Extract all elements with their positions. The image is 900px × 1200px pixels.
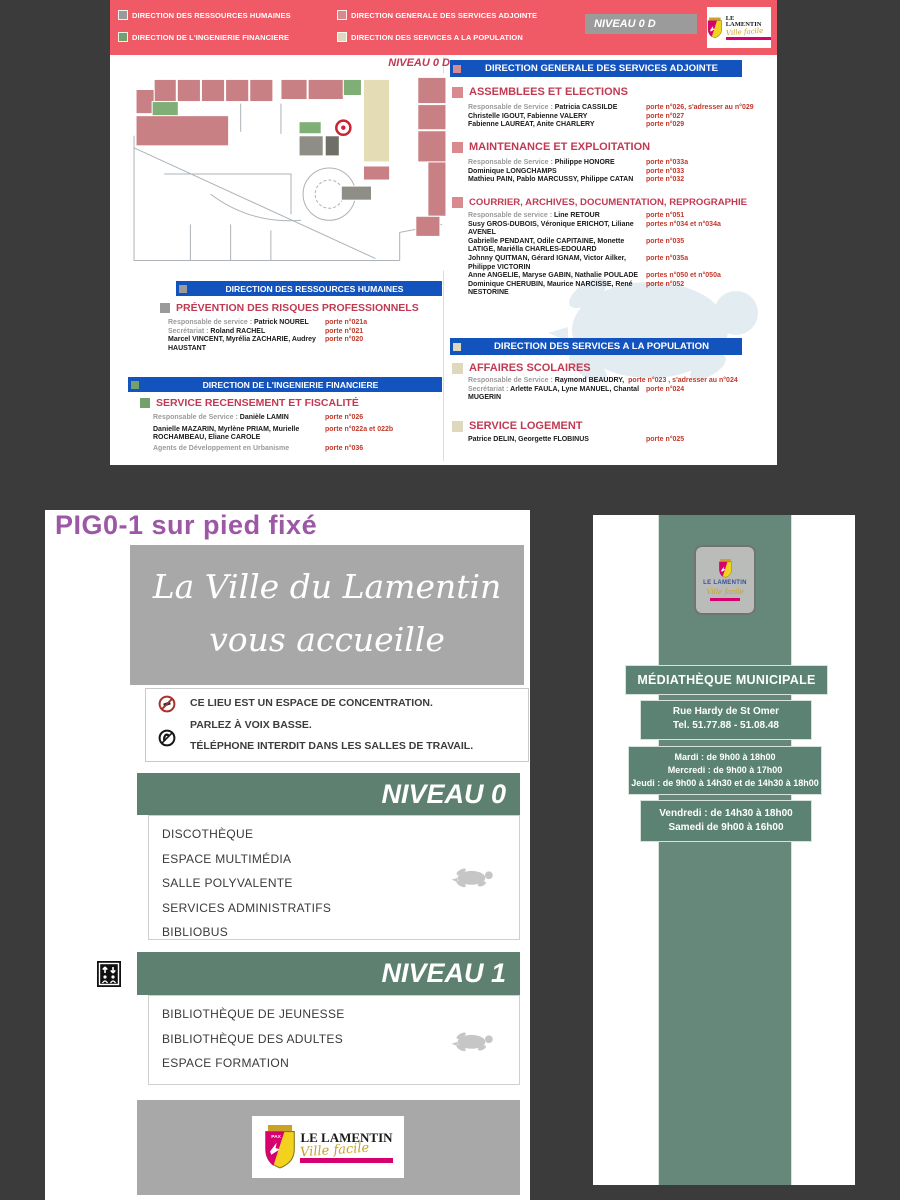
logo-text: LE LAMENTIN Ville facile xyxy=(726,16,771,40)
legend-item-dif: DIRECTION DE L'INGENIERIE FINANCIERE xyxy=(118,32,289,42)
list-item: SERVICES ADMINISTRATIFS xyxy=(162,896,519,921)
staff-row: Dominique CHERUBIN, Maurice NARCISSE, Re… xyxy=(468,281,764,298)
dsp-square xyxy=(453,343,461,351)
legend-square-gray xyxy=(118,10,128,20)
service-title-label: SERVICE RECENSEMENT ET FISCALITÉ xyxy=(156,397,359,409)
staff-row: Danielle MAZARIN, Myrlène PRIAM, Muriell… xyxy=(153,426,443,443)
legend-item-drh: DIRECTION DES RESSOURCES HUMAINES xyxy=(118,10,291,20)
logo-text: LE LAMENTIN Ville facile xyxy=(300,1131,392,1163)
dif-service-title: SERVICE RECENSEMENT ET FISCALITÉ xyxy=(140,397,359,409)
left-column: NIVEAU 0 D xyxy=(120,55,443,465)
rules-box: CE LIEU EST UN ESPACE DE CONCENTRATION. … xyxy=(145,688,529,762)
staff-row: Anne ANGELIE, Maryse GABIN, Nathalie POU… xyxy=(468,272,764,281)
dgsa-service-title-0: ASSEMBLEES ET ELECTIONS xyxy=(452,86,628,98)
elevator-icon xyxy=(97,961,121,987)
dgsa-service-title-2: COURRIER, ARCHIVES, DOCUMENTATION, REPRO… xyxy=(452,197,747,208)
welcome-line-1: La Ville du Lamentin xyxy=(130,567,524,606)
legend-label: DIRECTION DES RESSOURCES HUMAINES xyxy=(132,11,291,20)
legend-label: DIRECTION GENERALE DES SERVICES ADJOINTE xyxy=(351,11,537,20)
totem-hours-band-1: Mardi : de 9h00 à 18h00 Mercredi : de 9h… xyxy=(628,746,822,795)
totem-logo-plaque: LE LAMENTIN Ville facile xyxy=(694,545,756,615)
directory-header: DIRECTION DES RESSOURCES HUMAINES DIRECT… xyxy=(110,0,777,55)
staff-row: Responsable de Service : Danièle LAMIN p… xyxy=(153,414,443,423)
logo-tagline: Ville facile xyxy=(726,27,764,37)
niveau1-bar: NIVEAU 1 xyxy=(137,952,520,995)
dgsa-header-label: DIRECTION GENERALE DES SERVICES ADJOINTE xyxy=(461,63,742,74)
list-item: ESPACE FORMATION xyxy=(162,1051,519,1076)
poster-footer: PAX LE LAMENTIN Ville facile xyxy=(137,1100,520,1195)
staff-row: Responsable de service : Patrick NOUREL … xyxy=(168,319,443,328)
staff-row: Fabienne LAUREAT, Anite CHARLERY porte n… xyxy=(468,121,764,130)
dgsa-rows-0: Responsable de Service : Patricia CASSIL… xyxy=(468,104,764,130)
dsp-service-title-1: SERVICE LOGEMENT xyxy=(452,420,582,432)
niveau0-list: DISCOTHÈQUE ESPACE MULTIMÉDIA SALLE POLY… xyxy=(148,815,520,940)
legend-square-green xyxy=(118,32,128,42)
service-square xyxy=(452,363,463,374)
logo-name: LE LAMENTIN xyxy=(726,16,771,29)
service-square xyxy=(140,398,150,408)
dgsa-rows-2: Responsable de service : Line RETOUR por… xyxy=(468,212,764,298)
plan-title: NIVEAU 0 D xyxy=(130,57,450,69)
list-item: BIBLIOBUS xyxy=(162,920,519,945)
staff-row: Susy GROS-DUBOIS, Véronique ERICHOT, Lil… xyxy=(468,221,764,238)
logo-tagline: Ville facile xyxy=(706,588,743,596)
dsp-rows-1: Patrice DELIN, Georgette FLOBINUS porte … xyxy=(468,436,764,445)
list-item: DISCOTHÈQUE xyxy=(162,822,519,847)
list-item: SALLE POLYVALENTE xyxy=(162,871,519,896)
hours-line: Mercredi : de 9h00 à 17h00 xyxy=(629,764,821,777)
svg-text:PAX: PAX xyxy=(272,1134,282,1140)
service-title-label: MAINTENANCE ET EXPLOITATION xyxy=(469,141,650,153)
address-line: Rue Hardy de St Omer xyxy=(641,705,811,719)
dgsa-square xyxy=(453,65,461,73)
no-phone-icon xyxy=(158,729,176,747)
staff-row: Gabrielle PENDANT, Odile CAPITAINE, Mone… xyxy=(468,238,764,255)
totem-hours-band-2: Vendredi : de 14h30 à 18h00 Samedi de 9h… xyxy=(640,800,812,842)
no-noise-icon xyxy=(158,695,176,713)
crest-icon xyxy=(718,559,733,578)
crest-icon: PAX xyxy=(263,1125,297,1169)
service-title-label: COURRIER, ARCHIVES, DOCUMENTATION, REPRO… xyxy=(469,197,747,208)
list-item: BIBLIOTHÈQUE DE JEUNESSE xyxy=(162,1002,519,1027)
service-square xyxy=(160,303,170,313)
staff-row: Marcel VINCENT, Myrélia ZACHARIE, Audrey… xyxy=(168,336,443,353)
service-title-label: SERVICE LOGEMENT xyxy=(469,420,582,432)
niveau1-bar-icons xyxy=(55,961,121,987)
phone-line: Tel. 51.77.88 - 51.08.48 xyxy=(641,719,811,733)
staff-row: Responsable de Service : Patricia CASSIL… xyxy=(468,104,764,113)
logo-bar xyxy=(726,37,771,40)
niveau0-bar: NIVEAU 0 xyxy=(137,773,520,815)
dif-header-bar: DIRECTION DE L'INGENIERIE FINANCIERE xyxy=(128,377,442,392)
staff-row: Secrétariat : Arlette FAULA, Lyne MANUEL… xyxy=(468,386,764,403)
legend-square-beige xyxy=(337,32,347,42)
service-square xyxy=(452,197,463,208)
staff-row: Patrice DELIN, Georgette FLOBINUS porte … xyxy=(468,436,764,445)
list-item: BIBLIOTHÈQUE DES ADULTES xyxy=(162,1027,519,1052)
level-badge: NIVEAU 0 D xyxy=(585,14,697,34)
dsp-service-title-0: AFFAIRES SCOLAIRES xyxy=(452,362,591,374)
hours-line: Vendredi : de 14h30 à 18h00 xyxy=(641,807,811,821)
rule-text: PARLEZ À VOIX BASSE. xyxy=(190,719,312,731)
service-square xyxy=(452,142,463,153)
drh-square xyxy=(179,285,187,293)
service-square xyxy=(452,87,463,98)
staff-row: Responsable de Service : Philippe HONORE… xyxy=(468,159,764,168)
service-title-label: ASSEMBLEES ET ELECTIONS xyxy=(469,86,628,98)
rule-text: CE LIEU EST UN ESPACE DE CONCENTRATION. xyxy=(190,697,433,709)
poster-title: PIG0-1 sur pied fixé xyxy=(55,510,317,541)
staff-row: Johnny QUITMAN, Gérard IGNAM, Victor Ail… xyxy=(468,255,764,272)
logo-bar xyxy=(710,598,740,601)
hours-line: Samedi de 9h00 à 16h00 xyxy=(641,821,811,835)
page: DIRECTION DES RESSOURCES HUMAINES DIRECT… xyxy=(0,0,900,1200)
legend-square-rose xyxy=(337,10,347,20)
logo-name: LE LAMENTIN xyxy=(703,580,747,586)
rule-text: TÉLÉPHONE INTERDIT DANS LES SALLES DE TR… xyxy=(190,740,473,752)
welcome-poster: PIG0-1 sur pied fixé La Ville du Lamenti… xyxy=(45,510,530,1200)
crest-icon xyxy=(707,17,723,39)
drh-service-title: PRÉVENTION DES RISQUES PROFESSIONNELS xyxy=(160,302,419,314)
directory-panel: DIRECTION DES RESSOURCES HUMAINES DIRECT… xyxy=(110,0,777,465)
niveau1-list: BIBLIOTHÈQUE DE JEUNESSE BIBLIOTHÈQUE DE… xyxy=(148,995,520,1085)
list-item: ESPACE MULTIMÉDIA xyxy=(162,847,519,872)
lamentin-logo: PAX LE LAMENTIN Ville facile xyxy=(252,1116,404,1178)
right-column: DIRECTION GENERALE DES SERVICES ADJOINTE… xyxy=(450,58,767,462)
dif-square xyxy=(131,381,139,389)
dsp-rows-0: Responsable de Service : Raymond BEAUDRY… xyxy=(468,377,764,403)
legend-item-dgsa: DIRECTION GENERALE DES SERVICES ADJOINTE xyxy=(337,10,537,20)
drh-header-label: DIRECTION DES RESSOURCES HUMAINES xyxy=(187,284,442,294)
welcome-line-2: vous accueille xyxy=(130,620,524,659)
service-square xyxy=(452,421,463,432)
dgsa-service-title-1: MAINTENANCE ET EXPLOITATION xyxy=(452,141,650,153)
service-title-label: PRÉVENTION DES RISQUES PROFESSIONNELS xyxy=(176,302,419,314)
staff-row: Mathieu PAIN, Pablo MARCUSSY, Philippe C… xyxy=(468,176,764,185)
dif-rows: Responsable de Service : Danièle LAMIN p… xyxy=(153,414,443,453)
staff-row: Responsable de Service : Raymond BEAUDRY… xyxy=(468,377,764,386)
drh-header-bar: DIRECTION DES RESSOURCES HUMAINES xyxy=(176,281,442,296)
welcome-box: La Ville du Lamentin vous accueille xyxy=(130,545,524,685)
dgsa-header-bar: DIRECTION GENERALE DES SERVICES ADJOINTE xyxy=(450,60,742,77)
totem-column xyxy=(658,515,792,1185)
logo-tagline: Ville facile xyxy=(300,1142,370,1160)
legend-label: DIRECTION DE L'INGENIERIE FINANCIERE xyxy=(132,33,289,42)
hours-line: Mardi : de 9h00 à 18h00 xyxy=(629,751,821,764)
you-are-here-marker xyxy=(336,121,350,135)
dsp-header-label: DIRECTION DES SERVICES A LA POPULATION xyxy=(461,341,742,352)
staff-row: Dominique LONGCHAMPS porte n°033 xyxy=(468,168,764,177)
service-title-label: AFFAIRES SCOLAIRES xyxy=(469,362,591,374)
directory-body: NIVEAU 0 D xyxy=(110,55,777,465)
dsp-header-bar: DIRECTION DES SERVICES A LA POPULATION xyxy=(450,338,742,355)
hours-line: Jeudi : de 9h00 à 14h30 et de 14h30 à 18… xyxy=(629,777,821,790)
lamentin-logo: LE LAMENTIN Ville facile xyxy=(707,7,771,48)
mediatheque-totem: LE LAMENTIN Ville facile MÉDIATHÈQUE MUN… xyxy=(593,515,855,1185)
floor-plan xyxy=(130,73,450,271)
staff-row: Agents de Développement en Urbanisme por… xyxy=(153,445,443,454)
dif-header-label: DIRECTION DE L'INGENIERIE FINANCIERE xyxy=(139,380,442,390)
staff-row: Christelle IGOUT, Fabienne VALERY porte … xyxy=(468,113,764,122)
legend-label: DIRECTION DES SERVICES A LA POPULATION xyxy=(351,33,523,42)
stairs-up-icon xyxy=(55,961,89,987)
legend-item-dsp: DIRECTION DES SERVICES A LA POPULATION xyxy=(337,32,523,42)
dgsa-rows-1: Responsable de Service : Philippe HONORE… xyxy=(468,159,764,185)
staff-row: Secrétariat : Roland RACHEL porte n°021 xyxy=(168,328,443,337)
drh-rows: Responsable de service : Patrick NOUREL … xyxy=(168,319,443,353)
totem-address-band: Rue Hardy de St Omer Tel. 51.77.88 - 51.… xyxy=(640,700,812,740)
staff-row: Responsable de service : Line RETOUR por… xyxy=(468,212,764,221)
totem-name-band: MÉDIATHÈQUE MUNICIPALE xyxy=(625,665,828,695)
